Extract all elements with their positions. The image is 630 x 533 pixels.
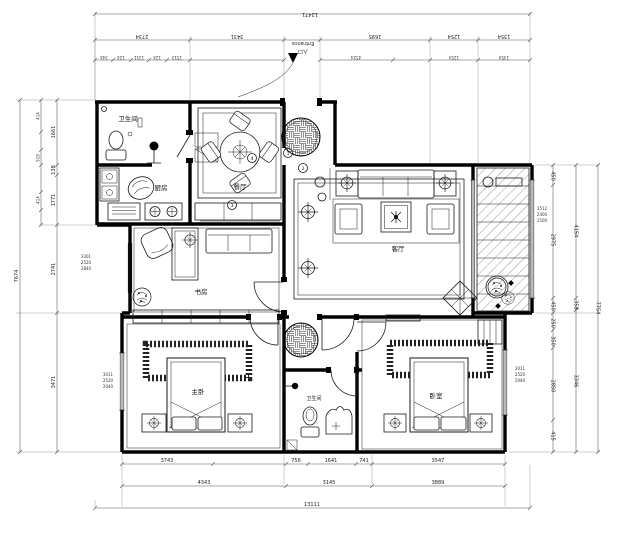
dim-bottom-total: 13111: [304, 502, 320, 508]
corridor: [284, 323, 318, 357]
dim-right1-0: 450: [550, 171, 556, 181]
dim-right1-5: 2850: [550, 380, 556, 393]
dim-top2-2: 1695: [369, 33, 382, 39]
corridor-rug: [284, 323, 318, 357]
room-label-bedroom2: 卧室: [430, 391, 444, 400]
room-dining: 餐厅: [195, 108, 281, 220]
dim-right1-6: 415: [550, 431, 556, 441]
dim-bot1-0: 3743: [161, 458, 174, 464]
dim-right2-1: 358: [573, 300, 579, 310]
balcony: [477, 168, 529, 311]
dim-left-1: 138: [51, 165, 57, 175]
dim-top3-5: 4524: [350, 55, 361, 60]
study-chair: [139, 225, 175, 260]
note-right-2-line2: 2520: [515, 372, 526, 377]
dim-top3-7: 1354: [498, 55, 509, 60]
note-left-1-line2: 2520: [81, 260, 92, 265]
note-right-1: 3512 2400 1500: [537, 206, 548, 223]
dim-top2-3: 1254: [448, 33, 461, 39]
room-bath-bottom: 卫生间: [284, 383, 352, 450]
coffee-table-plant: [391, 211, 401, 223]
room-bath-top: 卫生间: [102, 107, 162, 164]
dim-right2-2: 3346: [573, 375, 579, 388]
dim-right1-3: 250: [550, 318, 556, 328]
room-living: 客厅: [294, 168, 477, 321]
dim-top2-4: 1354: [498, 33, 511, 39]
dim-top-total: 12471: [302, 11, 318, 17]
note-left-1-line3: 2840: [81, 266, 92, 271]
dim-bot2-0: 4343: [198, 480, 211, 486]
dim-top3-2: 1311: [133, 55, 144, 60]
note-right-2-line1: 3011: [515, 366, 526, 371]
dim-left-0: 1661: [51, 126, 57, 139]
doors: [177, 135, 386, 396]
note-left-2: 3011 2520 2040: [103, 372, 114, 389]
room-label-master: 主卧: [192, 387, 206, 396]
marker-3: 3: [231, 203, 234, 209]
entry-rug: [282, 118, 320, 156]
marker-1: 1: [287, 151, 290, 157]
room-kitchen: 厨房: [100, 168, 182, 220]
dim-bot1-3: 741: [359, 458, 369, 464]
dim-bot2-1: 3145: [323, 480, 336, 486]
room-master: 主卧: [127, 324, 280, 448]
room-study: 书房: [133, 225, 279, 312]
marker-2: 2: [302, 166, 305, 172]
dim-left-2: 1771: [51, 194, 57, 207]
floorplan-canvas: Entrance 入口 卫生间 厨房: [0, 0, 630, 533]
balcony-floor-hatch: [477, 168, 529, 311]
note-right-2-line3: 2040: [515, 378, 526, 383]
dim-top2-0: 2734: [136, 33, 149, 39]
dim-top3-0: 344: [100, 55, 108, 60]
note-right-1-line1: 3512: [537, 206, 548, 211]
dim-bot1-4: 3547: [432, 458, 445, 464]
room-label-dining: 餐厅: [234, 182, 248, 191]
note-left-1-line1: 3301: [81, 254, 92, 259]
dim-top3-6: 1254: [448, 55, 459, 60]
dim-right1-1: 2975: [550, 234, 556, 247]
floorplan-drawing: Entrance 入口 卫生间 厨房: [0, 0, 630, 533]
dim-right1-2: 450: [550, 301, 556, 311]
room-label-living: 客厅: [392, 244, 406, 253]
dim-left-total: 7674: [14, 270, 20, 283]
entrance-annotation: Entrance 入口: [238, 40, 314, 97]
marker-4: 4: [251, 156, 254, 162]
dim-right-total: 7754: [595, 302, 601, 315]
dim-bot1-1: 756: [291, 458, 301, 464]
dim-top2-1: 3431: [231, 33, 244, 39]
entrance-leader-line: [238, 63, 293, 97]
note-right-2: 3011 2520 2040: [515, 366, 526, 383]
kitchen-chair: [125, 173, 157, 203]
dim-left-3: 2741: [51, 263, 57, 276]
dim-left-in-1: 519: [36, 154, 41, 162]
entry-hall: [282, 118, 320, 156]
dim-bot1-2: 1641: [325, 458, 338, 464]
dims-bottom: 3743 756 1641 741 3547 4343 3145 3889 13…: [93, 458, 532, 510]
note-left-2-line3: 2040: [103, 384, 114, 389]
note-left-2-line1: 3011: [103, 372, 114, 377]
entrance-arrow-icon: [288, 53, 298, 63]
entrance-label-cn: 入口: [298, 48, 308, 54]
dim-top3-1: 124: [117, 55, 125, 60]
room-label-kitchen: 厨房: [155, 183, 168, 192]
entrance-label-en: Entrance: [292, 40, 314, 46]
room-label-bath-bottom: 卫生间: [306, 395, 321, 402]
dim-right1-4: 350: [550, 336, 556, 346]
dim-left-4: 3471: [51, 376, 57, 389]
note-left-2-line2: 2520: [103, 378, 114, 383]
dim-bot2-2: 3889: [432, 480, 445, 486]
dim-left-in-2: 414: [36, 196, 41, 204]
room-label-study: 书房: [195, 287, 208, 296]
room-bedroom2: 卧室: [362, 320, 502, 449]
note-left-1: 3301 2520 2840: [81, 254, 92, 271]
dim-left-in-0: 414: [36, 112, 41, 120]
note-right-1-line2: 2400: [537, 212, 548, 217]
dims-top: 12471 2734 3431 1695 1254 1354 344 124 1…: [93, 11, 532, 62]
dim-top3-4: 1513: [171, 55, 182, 60]
dim-right2-0: 4154: [573, 225, 579, 238]
note-right-1-line3: 1500: [537, 218, 548, 223]
dim-top3-3: 124: [153, 55, 161, 60]
room-label-bath-top: 卫生间: [118, 114, 138, 123]
